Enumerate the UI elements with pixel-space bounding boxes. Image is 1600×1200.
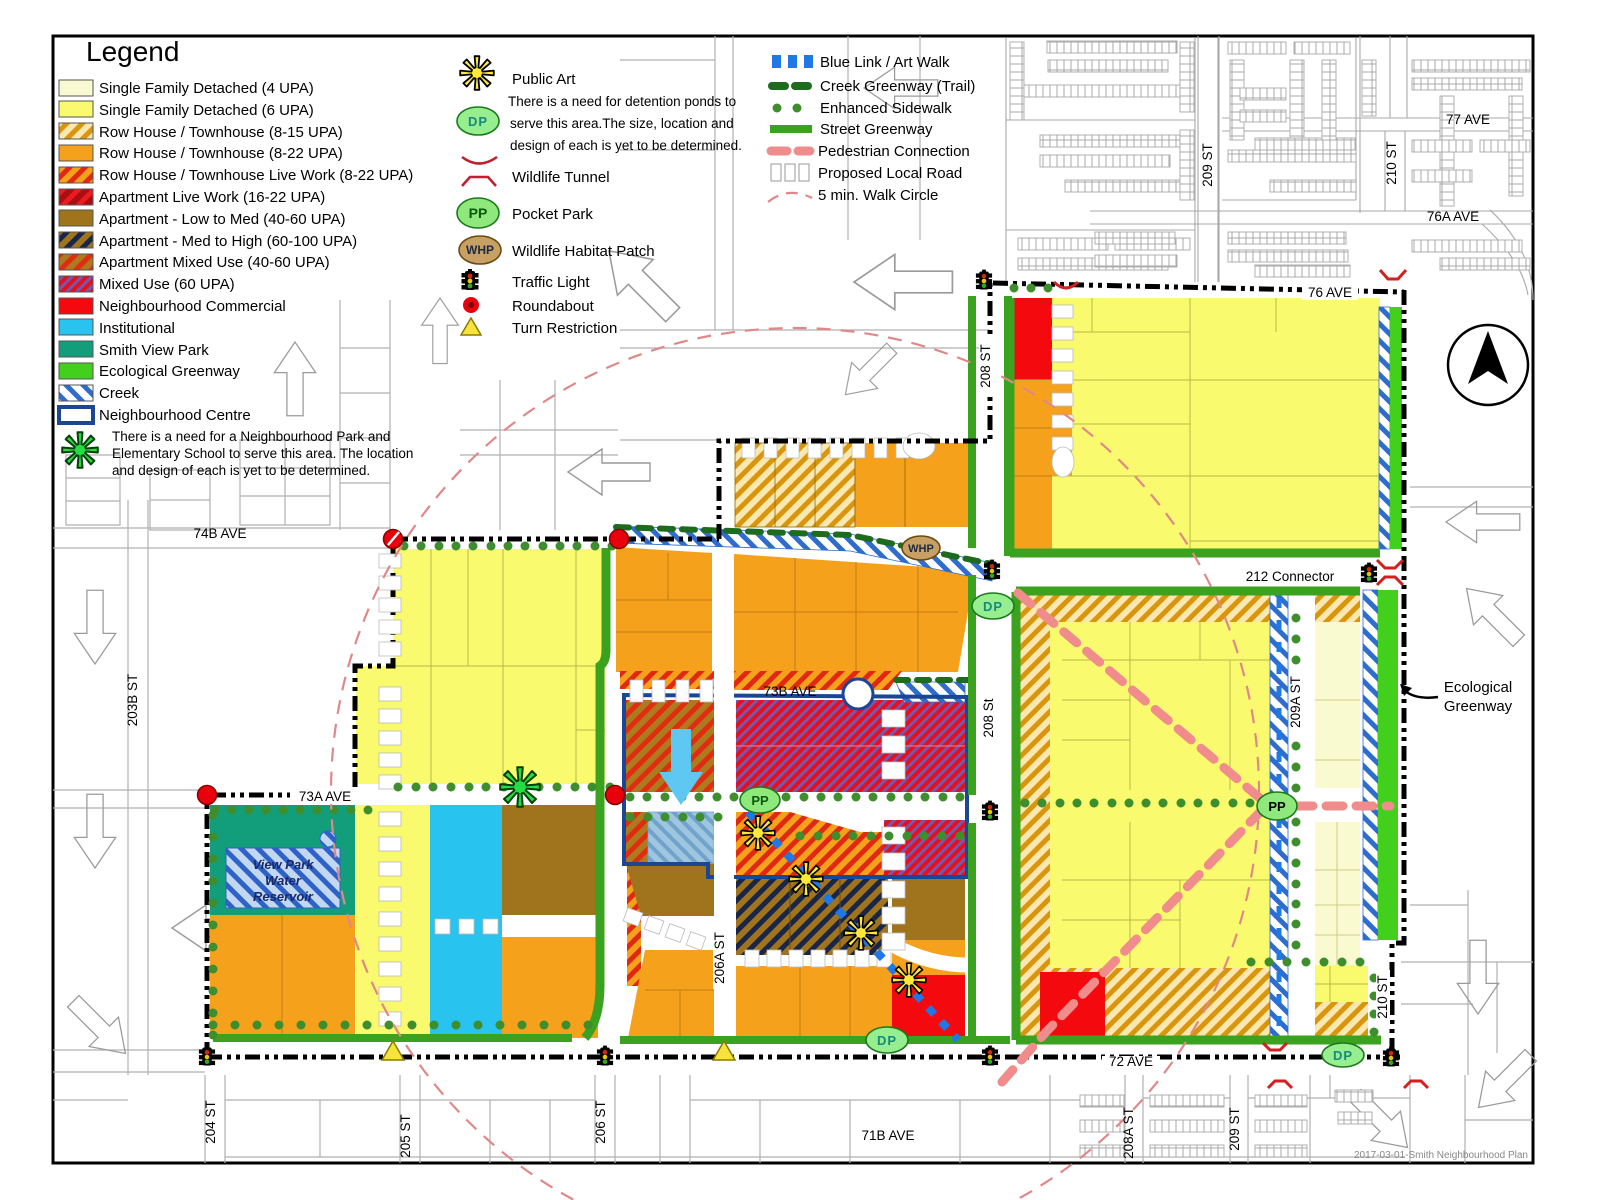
svg-text:Pedestrian Connection: Pedestrian Connection [818,143,970,160]
svg-text:Public Art: Public Art [512,71,576,88]
svg-text:Row House / Townhouse (8-22 UP: Row House / Townhouse (8-22 UPA) [99,145,343,162]
svg-text:72 AVE: 72 AVE [1109,1054,1153,1069]
svg-text:210 ST: 210 ST [1384,141,1399,185]
svg-text:and design of each is yet to b: and design of each is yet to be determin… [112,463,370,478]
svg-text:Apartment Mixed Use (40-60 UPA: Apartment Mixed Use (40-60 UPA) [99,254,330,271]
svg-text:Street Greenway: Street Greenway [820,121,933,138]
svg-text:Apartment Live Work (16-22 UPA: Apartment Live Work (16-22 UPA) [99,189,325,206]
svg-text:76A AVE: 76A AVE [1427,209,1479,224]
svg-text:Single Family Detached (6 UPA): Single Family Detached (6 UPA) [99,102,314,119]
svg-text:PP: PP [751,793,769,808]
svg-text:Smith View Park: Smith View Park [99,342,209,359]
svg-text:74B AVE: 74B AVE [193,526,246,541]
svg-text:206 ST: 206 ST [593,1100,608,1144]
svg-text:73A AVE: 73A AVE [299,789,351,804]
svg-text:WHP: WHP [908,543,934,555]
svg-text:Row House / Townhouse Live Wor: Row House / Townhouse Live Work (8-22 UP… [99,167,413,184]
svg-text:PP: PP [469,205,488,221]
svg-text:209A ST: 209A ST [1288,676,1303,728]
svg-text:Apartment - Med to High (60-1: Apartment - Med to High (60-100 UPA) [99,233,357,250]
svg-text:Neighbourhood Commercial: Neighbourhood Commercial [99,298,286,315]
svg-text:77 AVE: 77 AVE [1446,112,1490,127]
svg-text:PP: PP [1268,799,1286,814]
svg-text:serve this area.The size, loca: serve this area.The size, location and [510,116,734,131]
svg-text:208 ST: 208 ST [978,344,993,388]
svg-text:There is a need for a Neighbou: There is a need for a Neighbourhood Park… [112,429,390,444]
svg-text:Legend: Legend [86,36,179,67]
svg-text:209 ST: 209 ST [1227,1107,1242,1151]
svg-text:Single Family Detached (4 UPA): Single Family Detached (4 UPA) [99,80,314,97]
svg-text:Apartment - Low to Med (40-60: Apartment - Low to Med (40-60 UPA) [99,211,346,228]
svg-text:DP: DP [468,114,488,129]
svg-text:Water: Water [265,873,302,888]
svg-text:Ecological: Ecological [1444,679,1512,696]
svg-text:Pocket Park: Pocket Park [512,206,593,223]
svg-text:73B AVE: 73B AVE [763,684,816,699]
svg-text:208A ST: 208A ST [1121,1107,1136,1159]
svg-text:206A ST: 206A ST [712,932,727,984]
svg-text:Creek Greenway (Trail): Creek Greenway (Trail) [820,78,975,95]
svg-text:Ecological Greenway: Ecological Greenway [99,363,240,380]
svg-text:Blue Link / Art Walk: Blue Link / Art Walk [820,54,950,71]
svg-text:Mixed Use (60 UPA): Mixed Use (60 UPA) [99,276,235,293]
svg-text:71B AVE: 71B AVE [861,1128,914,1143]
svg-text:209 ST: 209 ST [1200,143,1215,187]
svg-text:WHP: WHP [466,243,494,257]
svg-text:Reservoir: Reservoir [253,889,314,904]
svg-text:DP: DP [877,1033,897,1048]
svg-text:212 Connector: 212 Connector [1246,569,1335,584]
svg-text:View Park: View Park [253,857,315,872]
svg-text:Creek: Creek [99,385,140,402]
svg-text:There is a need for detention: There is a need for detention ponds to [508,94,736,109]
svg-text:Enhanced Sidewalk: Enhanced Sidewalk [820,100,952,117]
svg-text:DP: DP [1333,1048,1353,1063]
svg-text:Wildlife Habitat Patch: Wildlife Habitat Patch [512,243,655,260]
svg-text:Turn Restriction: Turn Restriction [512,320,617,337]
svg-text:210 ST: 210 ST [1375,975,1390,1019]
svg-text:Row House / Townhouse (8-15 UP: Row House / Townhouse (8-15 UPA) [99,124,343,141]
svg-text:Proposed Local Road: Proposed Local Road [818,165,962,182]
svg-text:Institutional: Institutional [99,320,175,337]
svg-text:design of each is yet to be de: design of each is yet to be determined. [510,138,742,153]
svg-text:2017-03-01-Smith Neighbourhood: 2017-03-01-Smith Neighbourhood Plan [1354,1150,1528,1161]
svg-text:203B ST: 203B ST [125,674,140,727]
svg-text:Traffic Light: Traffic Light [512,274,590,291]
svg-text:76 AVE: 76 AVE [1308,285,1352,300]
svg-text:Neighbourhood Centre: Neighbourhood Centre [99,407,251,424]
svg-text:204 ST: 204 ST [203,1100,218,1144]
svg-text:DP: DP [983,599,1003,614]
svg-text:Wildlife Tunnel: Wildlife Tunnel [512,169,610,186]
svg-text:Roundabout: Roundabout [512,298,595,315]
svg-text:205 ST: 205 ST [398,1114,413,1158]
svg-text:Greenway: Greenway [1444,698,1513,715]
svg-text:208 St: 208 St [981,698,996,737]
svg-text:Elementary School to serve thi: Elementary School to serve this area. Th… [112,446,413,461]
svg-text:5 min. Walk Circle: 5 min. Walk Circle [818,187,938,204]
